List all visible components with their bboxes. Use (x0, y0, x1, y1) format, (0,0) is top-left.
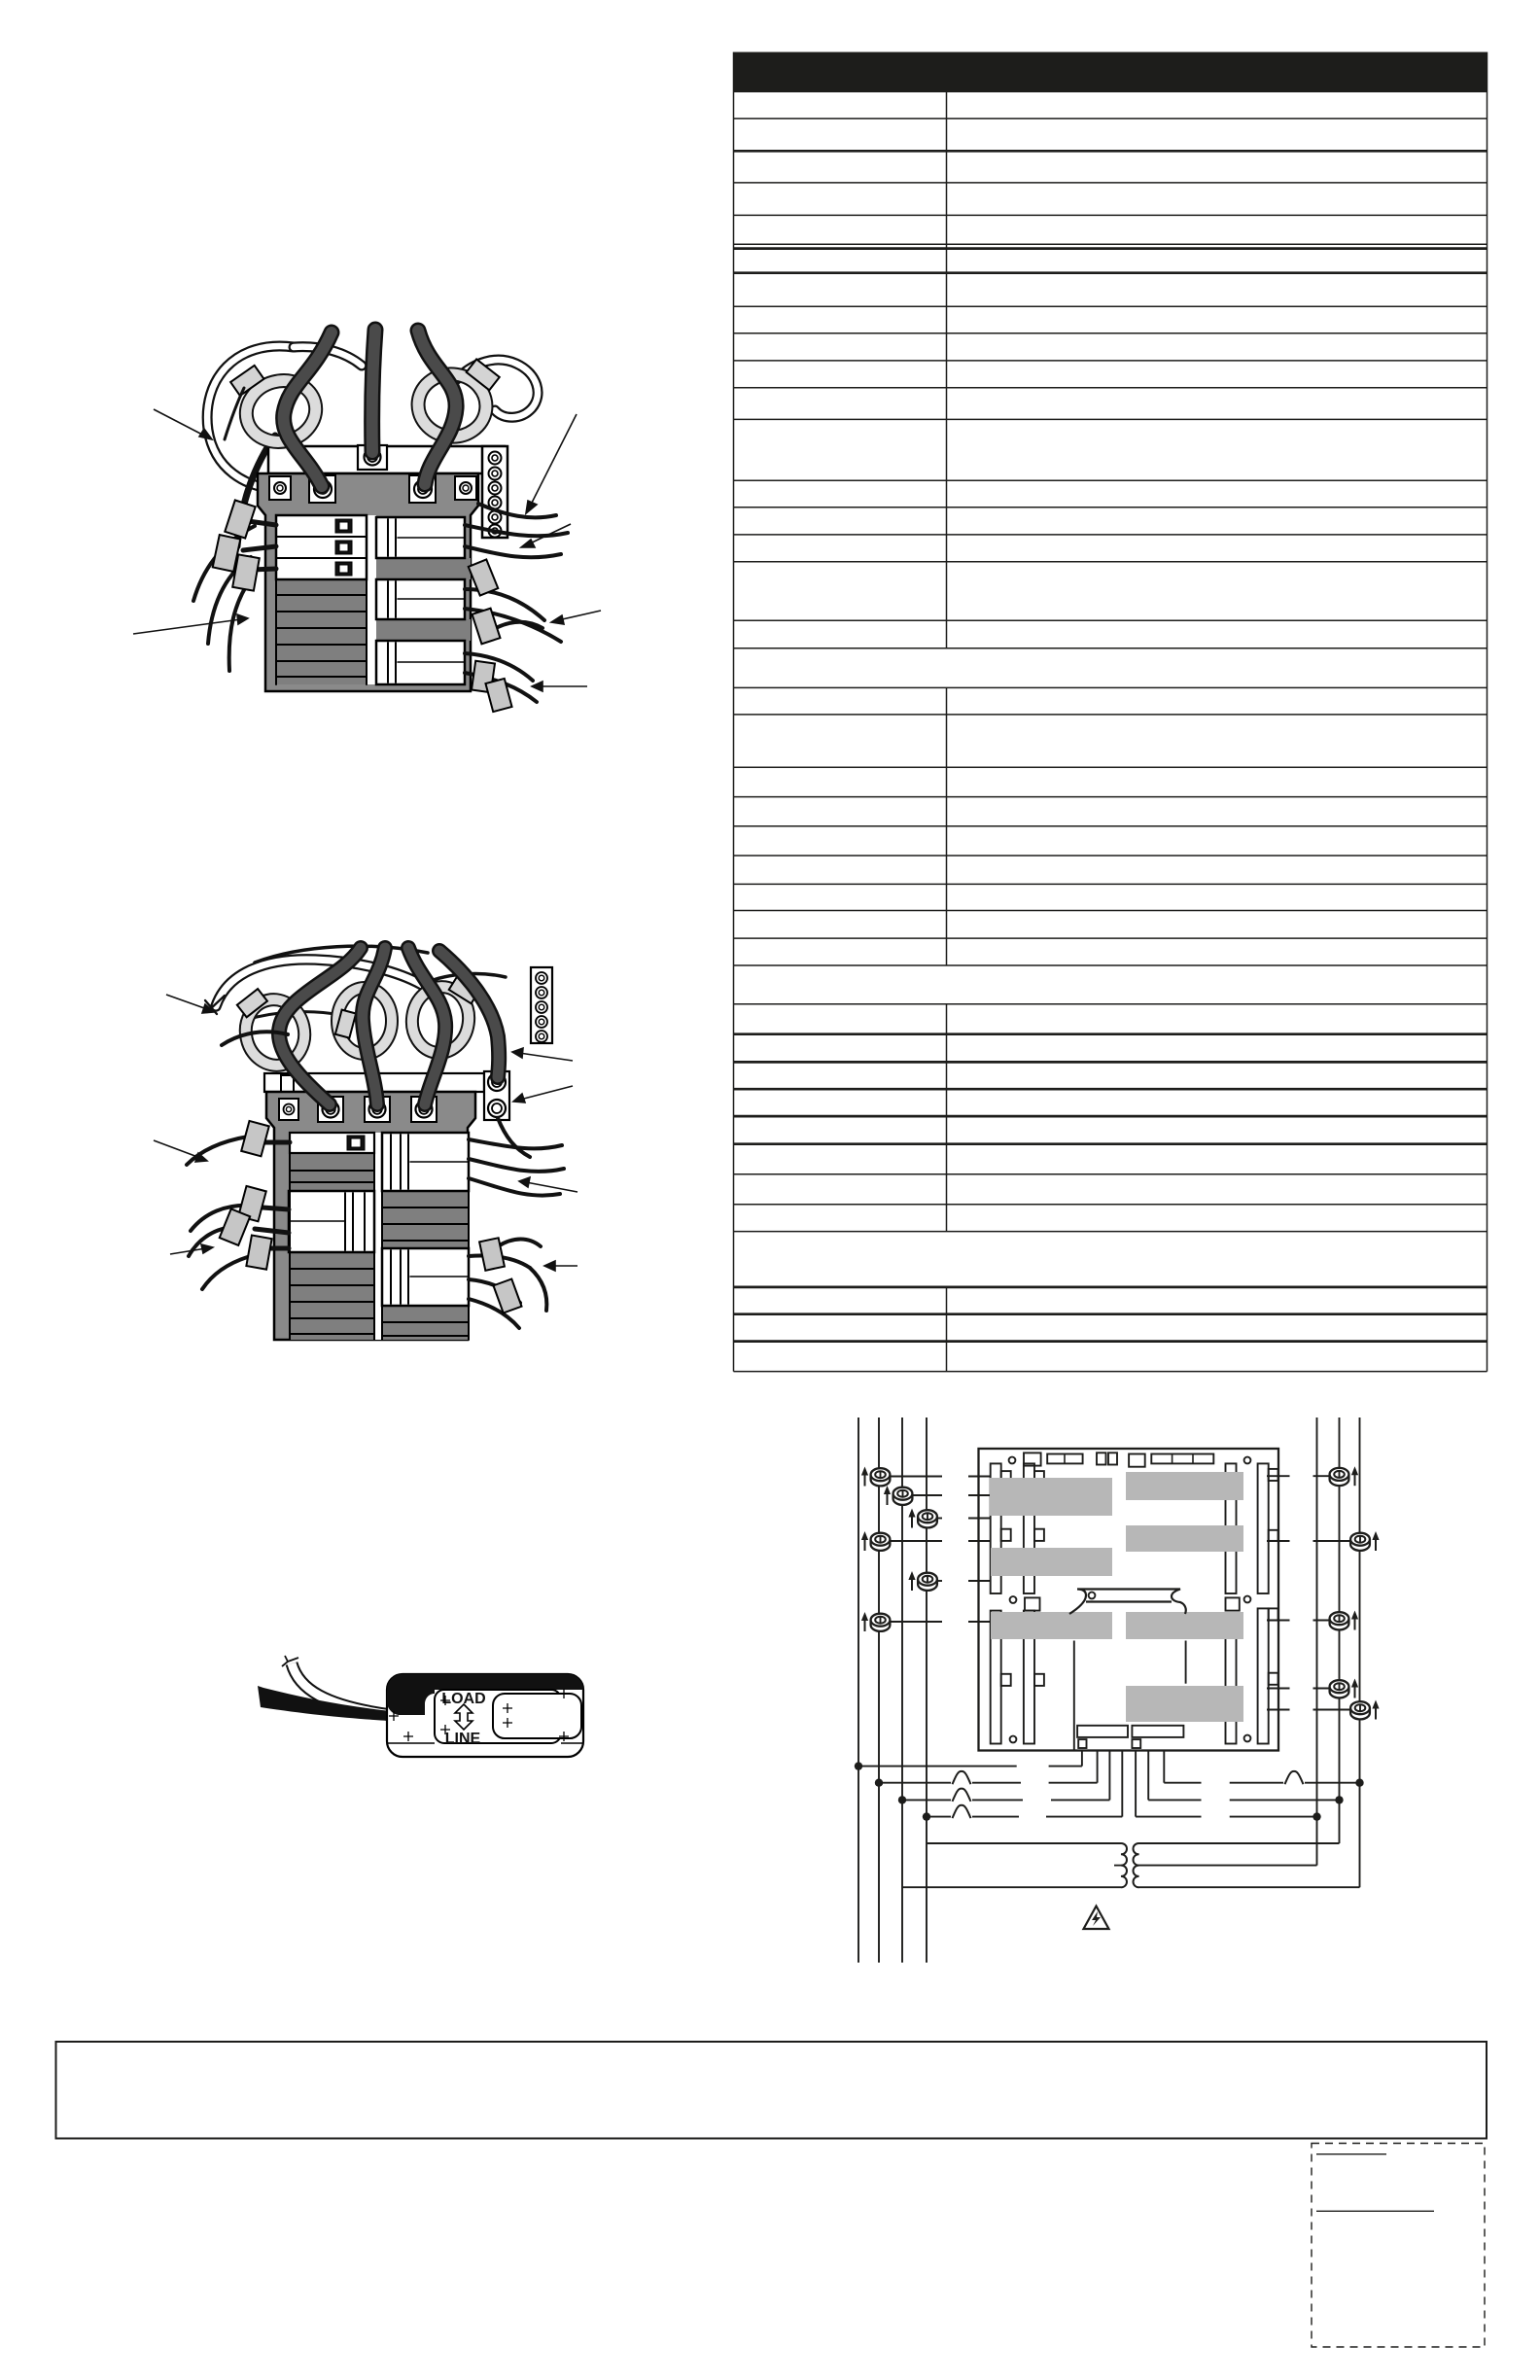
svg-text:LINE: LINE (445, 1731, 481, 1747)
